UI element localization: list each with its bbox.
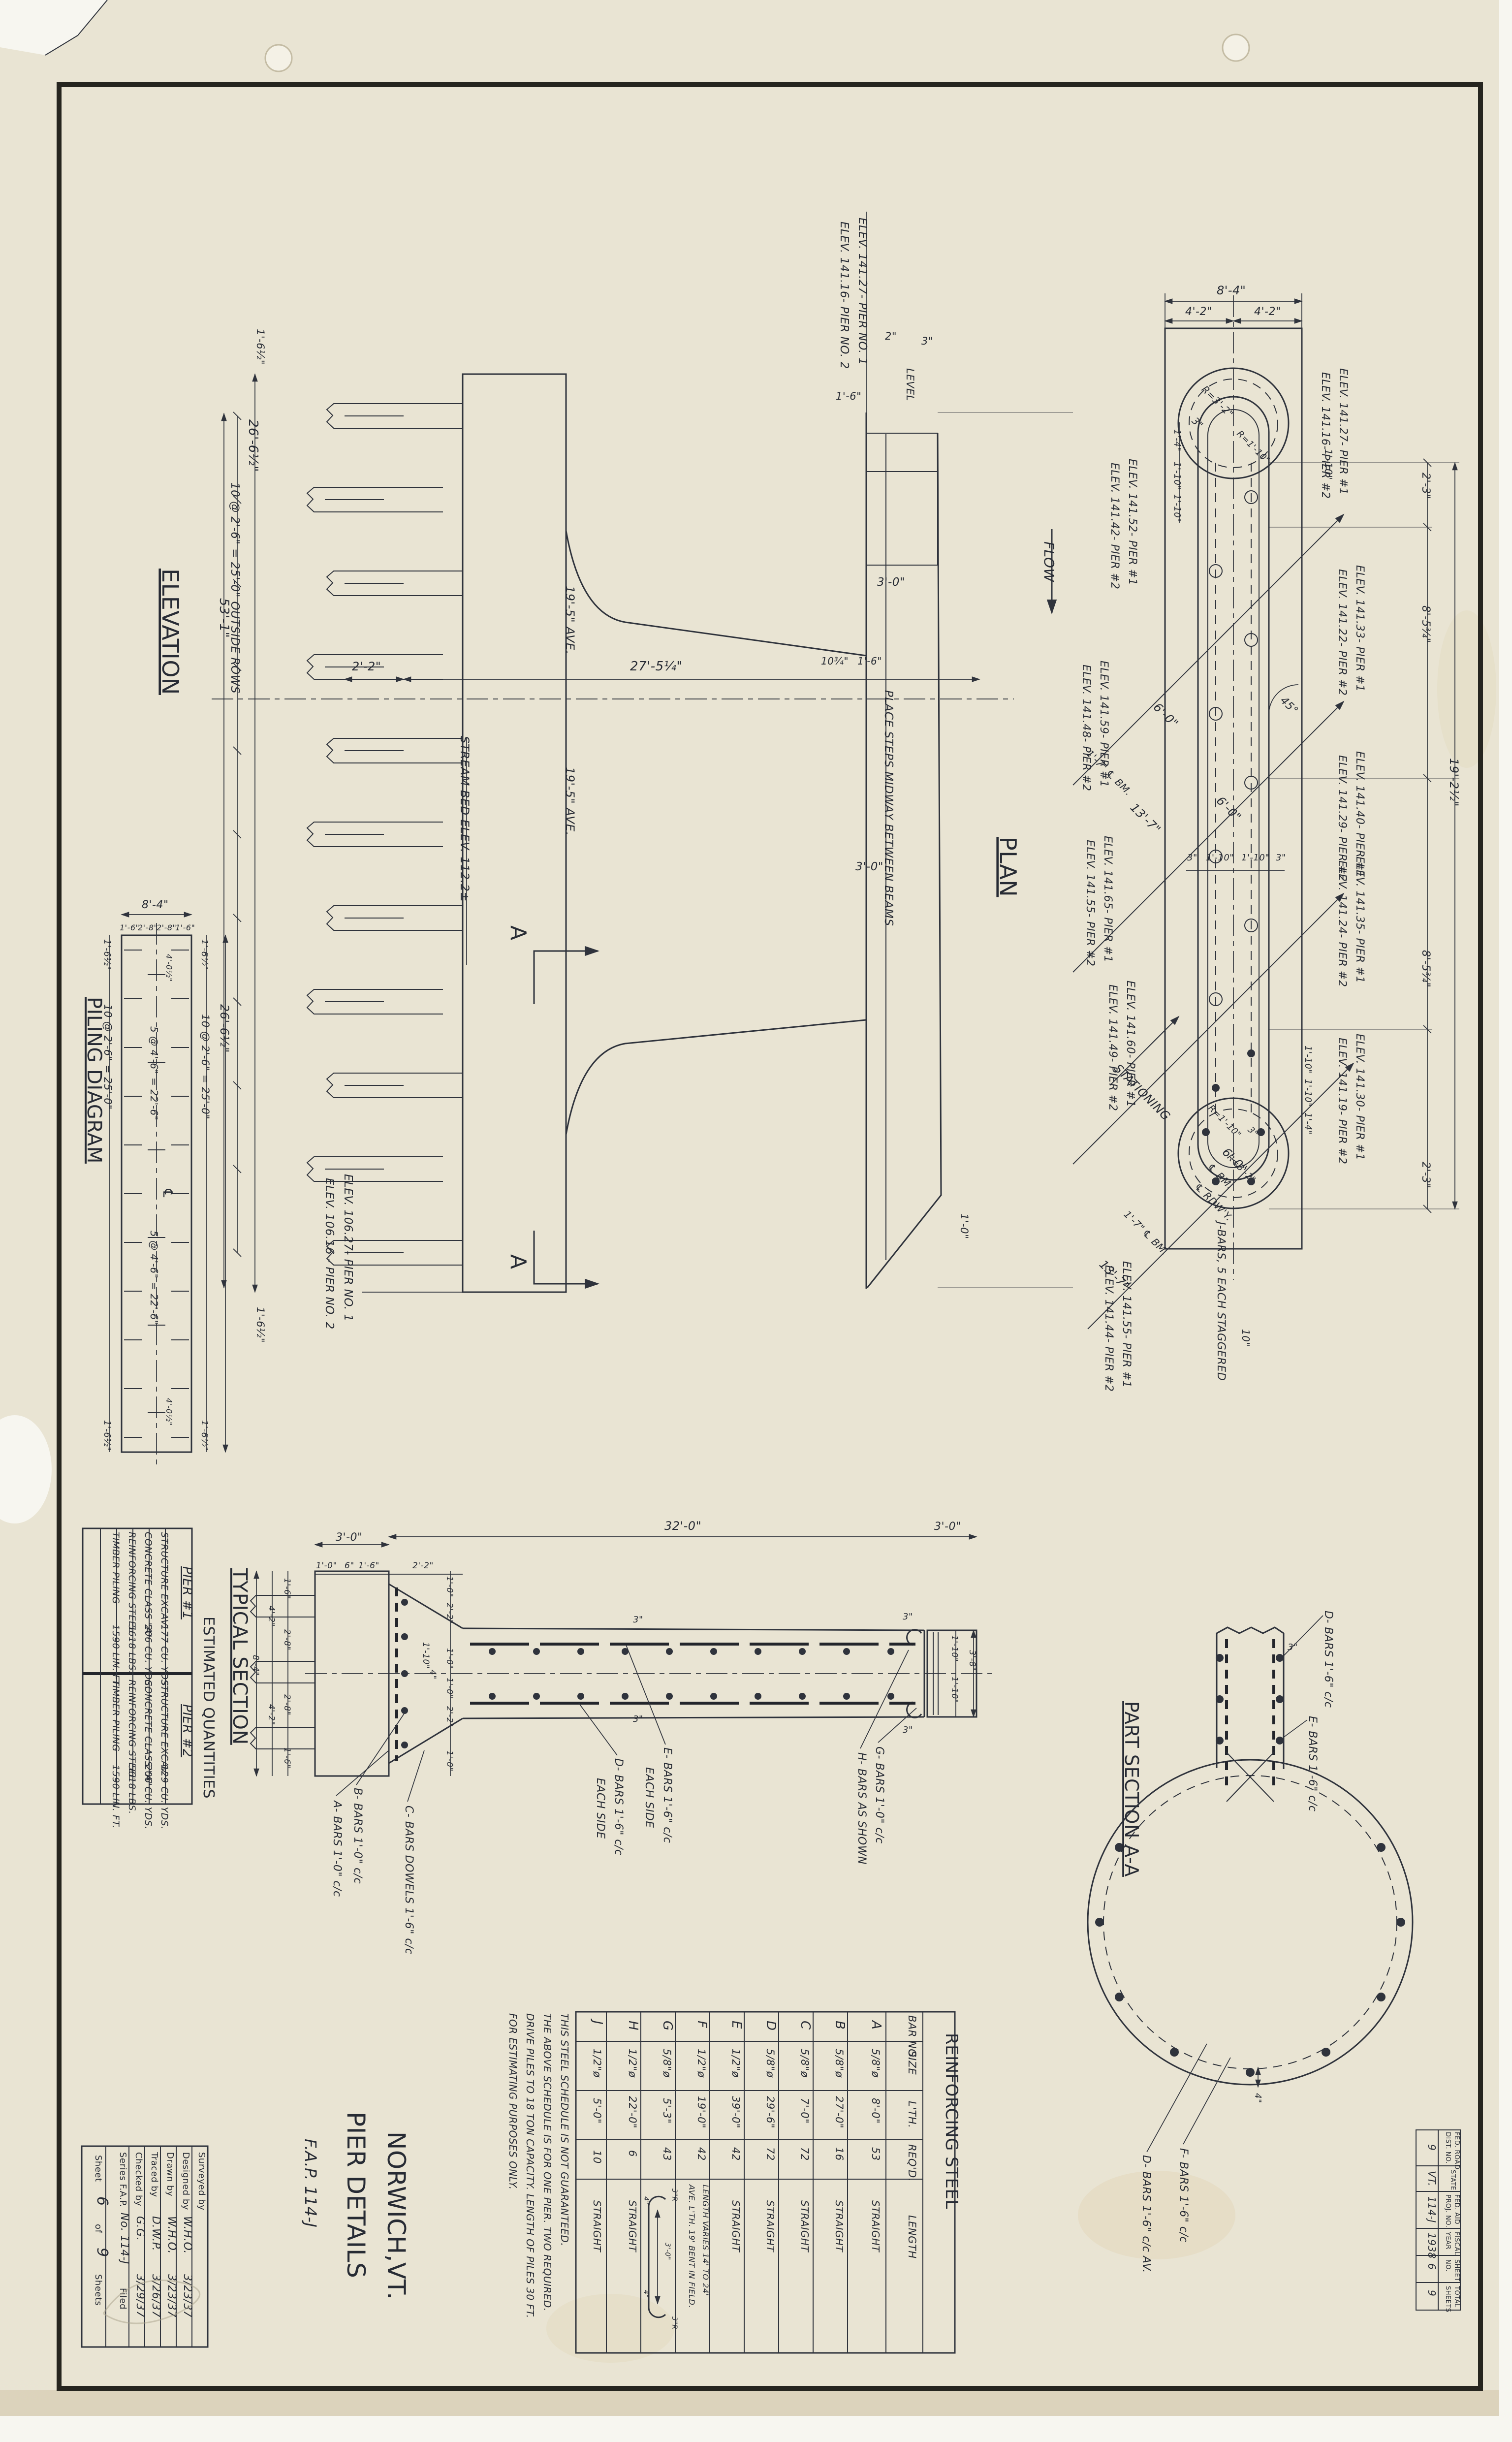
qty-value: 5618 LBS.	[126, 1765, 137, 1814]
qty-item: STRUCTURE EXCAV.	[159, 1532, 170, 1628]
cell-len: STRAIGHT	[799, 2200, 811, 2252]
dim-label: 26'-6½"	[218, 1004, 231, 1053]
dim-label: 3'-0"	[934, 1521, 961, 1533]
bar-callout: D- BARS 1'-6" c/c	[1322, 1611, 1334, 1708]
tb-label: Designed by	[181, 2152, 191, 2210]
cell-bar: H	[626, 2021, 640, 2030]
section-letter: A	[505, 925, 531, 941]
dim-label: 5 @ 4'-6" = 22'-6"	[148, 1231, 160, 1325]
stamp-value: 6	[1426, 2263, 1438, 2270]
cell-size: 5/8"ø	[764, 2049, 776, 2078]
stamp-label: TOTAL	[1453, 2285, 1460, 2308]
tb-label: Surveyed by	[196, 2152, 207, 2210]
g-dim: 4"	[642, 2290, 650, 2298]
piling-title: PILING DIAGRAM	[83, 997, 105, 1164]
dim-label: 8'-4"	[142, 899, 169, 911]
dim-label: 5 @ 4'-6" = 22'-6"	[148, 1026, 160, 1120]
tb-total-no: 9	[94, 2248, 111, 2257]
elev-label: ELEV. 141.48- PIER #2	[1080, 665, 1092, 791]
drawing-canvas: ELEVATION 53'-1" 26'-6½" 10 @ 2'-6" = 25…	[0, 0, 1512, 2442]
table-title: PIER #2	[180, 1704, 194, 1757]
elev-label: ELEV. 141.52- PIER #1	[1126, 459, 1138, 585]
dim-label: 4'-0½"	[164, 1398, 174, 1426]
punch-hole	[1223, 34, 1249, 61]
dim-label: 26'-6½"	[246, 419, 260, 472]
stamp-label: NO.	[1444, 2259, 1451, 2272]
dim-label: 1'-10"	[1206, 853, 1234, 863]
dim-label: 2'-2"	[352, 660, 381, 673]
dim-label: 19'-5" AVE.	[563, 767, 577, 836]
dim-label: 4'-2"	[266, 1704, 276, 1725]
dim-label: 1'-10"	[1303, 1046, 1313, 1074]
dim-label: 1'-4"	[1303, 1112, 1313, 1135]
scan-margin-right	[1499, 0, 1512, 2442]
cell-bar: G	[660, 2021, 675, 2031]
dim-label: 8'-4"	[251, 1655, 260, 1676]
dim-label: 4'-2"	[1185, 306, 1212, 318]
stamp-value: 114-J	[1426, 2196, 1438, 2223]
cell-lth: 29'-6"	[764, 2096, 776, 2128]
note-label: PLACE STEPS MIDWAY BETWEEN BEAMS	[882, 690, 895, 926]
plan-title: PLAN	[995, 837, 1021, 897]
g-dim: 3"R	[670, 2188, 678, 2202]
tb-label: Drawn by	[165, 2152, 175, 2196]
dim-label: 10 @ 2'-6" = 25'-0"	[199, 1014, 211, 1119]
cell-size: 5/8"ø	[833, 2049, 845, 2078]
dim-label: 4'-2"	[266, 1606, 276, 1627]
col-header: REQ'D.	[906, 2144, 918, 2182]
punch-hole	[265, 45, 292, 71]
cell-size: 5/8"ø	[870, 2049, 882, 2078]
dim-label: 1'-6½"	[199, 939, 210, 970]
qty-item: TIMBER PILING	[110, 1680, 121, 1752]
dim-label: 3'-8"	[967, 1650, 977, 1671]
steel-note: THIS STEEL SCHEDULE IS NOT GUARANTEED.	[559, 2013, 570, 2246]
cell-len: STRAIGHT	[591, 2200, 603, 2252]
dim-label: 3'-0"	[855, 860, 883, 873]
dim-label: 1'-0"	[958, 1213, 970, 1239]
dim-label: 2'-2"	[412, 1561, 434, 1571]
tb-value: G.G.	[134, 2216, 146, 2241]
tb-filed: Filed	[118, 2288, 128, 2310]
cell-bar: B	[832, 2021, 847, 2030]
dim-label: 8'-5¾"	[1419, 605, 1432, 643]
cell-lth: 5'-3"	[661, 2098, 673, 2124]
g-dim: 4"	[642, 2196, 650, 2204]
tb-series-no: No. 114-J	[118, 2213, 130, 2264]
elev-label: ELEV. 141.22- PIER #2	[1336, 569, 1348, 696]
quantities-heading: ESTIMATED QUANTITIES	[200, 1617, 217, 1799]
dim-label: 1'-10"	[1241, 853, 1269, 863]
qty-item: REINFORCING STEEL	[126, 1532, 137, 1633]
dim-label: LEVEL	[904, 368, 916, 401]
dim-label: 4'-2"	[1254, 306, 1281, 318]
flow-label: FLOW	[1041, 541, 1057, 582]
dim-label: 2'-3"	[1419, 473, 1432, 500]
tb-value: W.H.O.	[181, 2216, 193, 2254]
elev-label: ELEV. 141.30- PIER #1	[1354, 1034, 1366, 1160]
elev-label: ELEV. 141.27- PIER #1	[1337, 368, 1349, 495]
stamp-value: 1938	[1426, 2233, 1438, 2259]
stamp-value: 9	[1426, 2144, 1438, 2151]
cell-bar: D	[763, 2021, 778, 2031]
dim-label: 3"	[633, 1714, 643, 1724]
steel-note: FOR ESTIMATING PURPOSES ONLY.	[507, 2013, 519, 2190]
cell-bar: F	[694, 2021, 709, 2029]
dim-label: 8'-5¾"	[1419, 950, 1432, 987]
cell-lth: 19'-0"	[695, 2096, 707, 2128]
cell-req: 72	[764, 2147, 776, 2161]
cell-req: 10	[591, 2150, 603, 2164]
stain	[1437, 610, 1496, 768]
qty-value: 1590 LIN. FT.	[110, 1624, 121, 1688]
qty-value: 129 CU. YDS.	[159, 1765, 170, 1830]
elev-label: ELEV. 141.33- PIER #1	[1354, 565, 1366, 692]
elev-label: ELEV. 141.16- PIER NO. 2	[838, 222, 850, 369]
dim-label: 3"	[903, 1612, 913, 1622]
dim-label: 3"	[903, 1725, 913, 1735]
stamp-value: 9	[1426, 2290, 1438, 2296]
col-header: LENGTH	[906, 2215, 918, 2259]
bar-callout: A- BARS 1'-0" c/c	[331, 1800, 343, 1897]
bar-callout: E- BARS 1'-6" c/c	[661, 1747, 673, 1843]
dim-label: 2'-8"	[157, 923, 176, 932]
dim-label: 1'-6"	[120, 923, 139, 932]
dim-label: 19'-5" AVE.	[563, 586, 577, 655]
tb-value: D.W.P.	[150, 2216, 162, 2251]
dim-label: 1'-6½"	[199, 1420, 210, 1451]
stamp-label: FED. ROAD	[1453, 2132, 1460, 2169]
bar-callout: F- BARS 1'-6" c/c	[1177, 2148, 1190, 2243]
cell-lth: 5'-0"	[591, 2098, 603, 2124]
cell-bar: C	[798, 2021, 813, 2030]
dim-label: 1'-0"	[444, 1750, 454, 1772]
dim-label: 3"	[921, 335, 933, 347]
dim-label: 1'-10"	[949, 1677, 959, 1703]
tb-sheet-word: Sheet	[93, 2155, 103, 2182]
tb-series-label: Series F.A.P.	[118, 2152, 128, 2207]
dim-label: 1'-6"	[175, 923, 195, 932]
elev-label: ELEV. 141.19- PIER #2	[1336, 1038, 1348, 1164]
dim-label: 3'-0"	[877, 576, 905, 589]
scanned-blueprint-sheet: { "sheet": { "title1": "PIER DETAILS", "…	[0, 0, 1512, 2442]
qty-value: 5618 LBS.	[126, 1624, 137, 1674]
dim-label: 1'-6½"	[102, 939, 112, 970]
dim-label: 10¾"	[821, 655, 849, 667]
g-dim: 3'-0"	[663, 2243, 671, 2260]
cell-req: 42	[695, 2147, 707, 2161]
bar-callout: B- BARS 1'-0" c/c	[351, 1788, 364, 1884]
bar-callout: EACH SIDE	[643, 1767, 655, 1828]
cell-len: STRAIGHT	[730, 2200, 742, 2252]
cell-len: STRAIGHT	[764, 2200, 776, 2252]
cell-len: STRAIGHT	[833, 2200, 845, 2252]
dim-label: 3'-0"	[336, 1531, 363, 1544]
dim-label: 1'-0"	[444, 1648, 454, 1669]
dim-label: 1'-6½"	[102, 1420, 112, 1451]
cell-size: 5/8"ø	[661, 2049, 673, 2078]
qty-item: TIMBER PILING	[110, 1532, 121, 1604]
col-header: SIZE	[906, 2051, 918, 2075]
cell-len-note: AVE. L'TH. 19' BENT IN FIELD.	[687, 2184, 696, 2308]
cell-req: 6	[627, 2150, 638, 2157]
dim-label: 8'-4"	[1217, 284, 1246, 297]
tb-label: Checked by	[133, 2152, 144, 2206]
dim-label: 1'-4"	[1172, 429, 1182, 451]
cell-lth: 8'-0"	[870, 2098, 882, 2124]
bar-callout: D- BARS 1'-6" c/c AV.	[1140, 2155, 1152, 2273]
cell-lth: 27'-0"	[833, 2096, 845, 2128]
paper	[0, 0, 1499, 2416]
cell-size: 5/8"ø	[799, 2049, 811, 2078]
bar-callout: C- BARS DOWELS 1'-6" c/c	[403, 1806, 415, 1955]
dim-label: 1'-0"	[444, 1678, 454, 1699]
sheet-title-line3: F.A.P. 114-J	[301, 2139, 320, 2227]
dim-label: 2'-2"	[444, 1603, 454, 1624]
dim-label: 4"	[1253, 2093, 1263, 2103]
elev-label: ELEV. 141.65- PIER #1	[1102, 836, 1114, 962]
dim-label: 10 @ 2'-6" = 25'-0" OUTSIDE ROWS	[228, 482, 241, 694]
steel-note: THE ABOVE SCHEDULE IS FOR ONE PIER. TWO …	[541, 2013, 553, 2312]
dim-label: 32'-0"	[664, 1519, 701, 1533]
bar-callout: EACH SIDE	[594, 1778, 606, 1839]
dim-label: 1'-10"	[1172, 462, 1182, 490]
note-label: STREAM BED ELEV. 112.2±	[458, 736, 472, 902]
elev-label: ELEV. 141.35- PIER #1	[1354, 856, 1366, 983]
dim-label: 2"	[885, 330, 897, 342]
elev-label: ELEV. 141.44- PIER #2	[1102, 1265, 1115, 1392]
dim-label: 1'-6½"	[254, 1307, 266, 1343]
stamp-label: SHEETS	[1444, 2286, 1451, 2313]
dim-label: 1'-6"	[836, 390, 861, 402]
cell-size: 1/2"ø	[695, 2049, 707, 2078]
dim-label: 2'-8"	[282, 1694, 292, 1715]
dim-label: 1'-10"	[1303, 1079, 1313, 1107]
centerline-symbol: ℄	[160, 1187, 175, 1199]
tb-sheet-no: 6	[94, 2196, 111, 2206]
elev-label: ELEV. 141.24- PIER #2	[1336, 860, 1348, 987]
dim-label: 2'-8"	[138, 923, 157, 932]
bar-callout: G- BARS 1'-0" c/c	[873, 1746, 885, 1844]
cell-req: 16	[833, 2147, 845, 2161]
cell-size: 1/2"ø	[730, 2049, 742, 2078]
tb-of-word: of	[93, 2224, 103, 2233]
stamp-label: YEAR	[1444, 2231, 1451, 2250]
cell-len-note: LENGTH VARIES 14' TO 24'	[701, 2185, 710, 2296]
cell-size: 1/2"ø	[591, 2049, 603, 2078]
tb-label: Traced by	[149, 2152, 159, 2197]
qty-item: CONCRETE CLASS "A"	[143, 1532, 154, 1638]
dim-label: 1'-10"	[421, 1642, 431, 1669]
dim-label: 1'-10"	[1323, 449, 1334, 480]
cell-bar: E	[729, 2021, 744, 2029]
qty-value: 1590 LIN. FT.	[110, 1765, 121, 1829]
tb-value: W.H.O.	[165, 2216, 178, 2254]
table-title: PIER #1	[180, 1566, 194, 1619]
elev-label: ELEV. 106.16 - PIER NO. 2	[323, 1178, 336, 1330]
qty-item: STRUCTURE EXCAV.	[159, 1680, 170, 1776]
elevation-title: ELEVATION	[157, 569, 184, 695]
stamp-label: SHEET	[1453, 2259, 1460, 2282]
dim-label: 1'-6"	[857, 655, 882, 667]
dim-label: 3"	[1288, 1642, 1298, 1652]
bar-callout: E- BARS 1'-6" c/c	[1306, 1716, 1319, 1811]
dim-label: 2'-8"	[282, 1629, 292, 1650]
scan-margin-bottom	[0, 2416, 1512, 2442]
stamp-value: VT.	[1426, 2171, 1438, 2186]
cell-size: 1/2"ø	[627, 2049, 638, 2078]
dim-label: 1'-6"	[358, 1561, 379, 1571]
stamp-label: STATE	[1449, 2170, 1456, 2190]
dim-label: 3"	[633, 1615, 643, 1625]
cell-req: 42	[730, 2147, 742, 2161]
dim-label: 1'-6"	[282, 1578, 292, 1599]
bar-callout: D- BARS 1'-6" c/c	[612, 1758, 625, 1855]
g-dim: 3"R	[670, 2316, 678, 2330]
col-header: L'TH.	[906, 2101, 918, 2128]
dim-label: 10"	[1240, 1329, 1252, 1347]
cell-len: STRAIGHT	[870, 2200, 882, 2252]
cell-len: STRAIGHT	[627, 2200, 638, 2252]
dim-label: 6"	[345, 1561, 354, 1571]
section-letter: A	[505, 1254, 531, 1269]
dim-label: 4"	[428, 1670, 438, 1680]
cell-req: 53	[870, 2147, 882, 2161]
dim-label: 4'-0½"	[164, 954, 174, 982]
cell-bar: A	[869, 2020, 883, 2030]
elev-label: ELEV. 141.42- PIER #2	[1108, 463, 1121, 589]
dim-label: 1'-0"	[444, 1576, 454, 1597]
elev-label: ELEV. 141.27- PIER NO. 1	[856, 218, 869, 365]
stamp-label: FISCAL	[1453, 2232, 1460, 2255]
part-section-title: PART SECTION A-A	[1121, 1701, 1142, 1877]
cell-req: 43	[661, 2147, 673, 2161]
dim-label: 27'-5¼"	[630, 659, 683, 674]
qty-value: 206 CU. YDS.	[143, 1765, 154, 1830]
tb-sheets-word: Sheets	[93, 2274, 103, 2306]
stamp-label: PROJ. NO.	[1444, 2194, 1451, 2227]
elev-label: ELEV. 141.55- PIER #2	[1084, 840, 1096, 966]
bar-callout: H- BARS AS SHOWN	[855, 1752, 868, 1865]
cell-req: 72	[799, 2147, 811, 2161]
note-label: J-BARS, 5 EACH STAGGERED	[1215, 1220, 1227, 1381]
steel-note: DRIVE PILES TO 18 TON CAPACITY. LENGTH O…	[524, 2013, 536, 2318]
dim-label: 1'-0"	[316, 1561, 337, 1571]
cell-lth: 22'-0"	[627, 2096, 638, 2128]
sheet-title-line2: NORWICH,VT.	[382, 2131, 410, 2300]
cell-lth: 7'-0"	[799, 2098, 811, 2124]
stamp-label: FED. AID	[1453, 2194, 1460, 2224]
cell-lth: 39'-0"	[730, 2096, 742, 2128]
dim-label: 2'-3"	[1419, 1162, 1432, 1189]
dim-label: 2'-2"	[444, 1706, 454, 1727]
dim-label: 3"	[1276, 853, 1286, 863]
dim-label: 1'-10"	[1172, 494, 1182, 522]
tb-date: 3/29/37	[134, 2274, 146, 2317]
dim-label: 1'-6½"	[254, 329, 266, 365]
dim-label: 3"	[1187, 853, 1197, 863]
stamp-label: DIST. NO.	[1444, 2132, 1451, 2164]
elev-label: ELEV. 141.49- PIER #2	[1106, 984, 1119, 1111]
steel-table-title: REINFORCING STEEL	[942, 2033, 961, 2209]
elev-label: ELEV. 106.27- PIER NO. 1	[342, 1174, 354, 1322]
dim-label: 19'-2½"	[1447, 758, 1461, 807]
dim-label: 1'-10"	[949, 1635, 959, 1662]
dim-label: 1'-6"	[282, 1747, 292, 1769]
paper-edge-shade	[0, 2390, 1499, 2416]
typical-section-title: TYPICAL SECTION	[228, 1568, 251, 1745]
stain	[1078, 2171, 1235, 2259]
sheet-title-line1: PIER DETAILS	[342, 2112, 370, 2278]
